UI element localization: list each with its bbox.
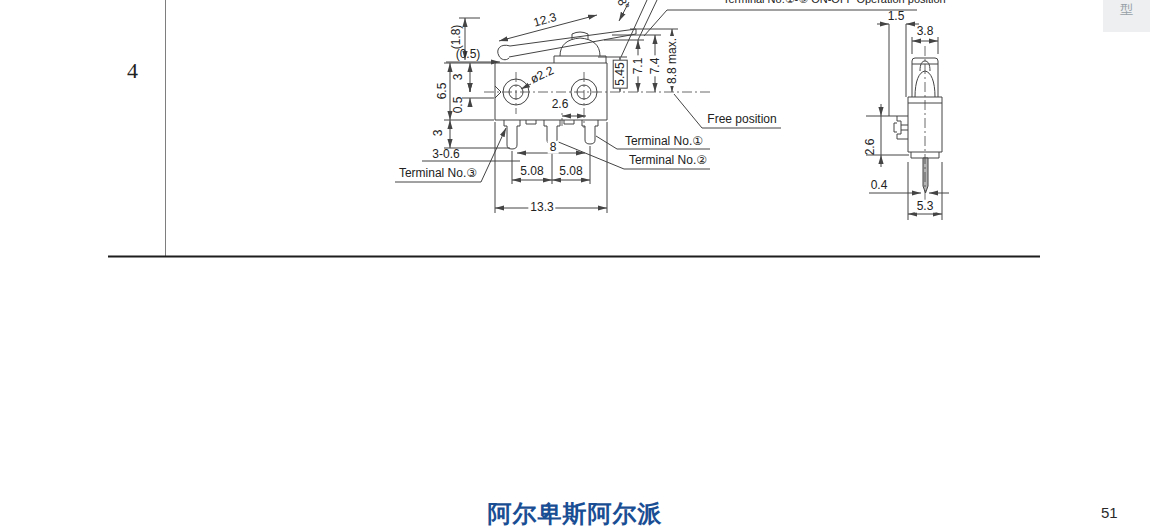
dim-pitch-right: 5.08 bbox=[557, 165, 584, 178]
dim-lever-end-height: (1.8) bbox=[450, 25, 463, 50]
dim-body-width: 13.3 bbox=[528, 201, 555, 214]
front-view-drawing bbox=[395, 0, 917, 213]
dim-height-2: 7.4 bbox=[649, 56, 662, 77]
dim-clip-offset: 1.5 bbox=[888, 10, 905, 23]
dim-pitch-left: 5.08 bbox=[518, 165, 545, 178]
terminal-2-label: Terminal No.② bbox=[629, 154, 707, 167]
top-note: Terminal No.①-③ ON-OFF Operation positio… bbox=[723, 0, 946, 6]
dim-body-height: 6.5 bbox=[436, 83, 449, 100]
dim-lever-thickness: (0.5) bbox=[456, 48, 481, 61]
dim-pin-thickness: 0.4 bbox=[871, 179, 888, 192]
terminal-3-label: Terminal No.③ bbox=[399, 167, 477, 180]
corner-tab-label: 型 bbox=[1103, 1, 1150, 19]
row-number: 4 bbox=[127, 58, 138, 84]
dim-free-height: 8.8 max. bbox=[666, 36, 679, 86]
page-number: 51 bbox=[1101, 504, 1118, 521]
dim-op-height: 5.45 bbox=[613, 59, 628, 88]
dim-pin-note: 3-0.6 bbox=[432, 148, 459, 161]
free-position-label: Free position bbox=[707, 113, 776, 126]
dim-notch-depth: 0.5 bbox=[452, 97, 465, 114]
dim-top-to-center: 3 bbox=[452, 74, 465, 81]
dim-clip-height: 2.6 bbox=[864, 139, 877, 156]
corner-tab: 型 bbox=[1103, 0, 1150, 32]
technical-drawing bbox=[0, 0, 1150, 529]
dim-height-1: 7.1 bbox=[632, 56, 645, 77]
terminal-1-label: Terminal No.① bbox=[625, 135, 703, 148]
footer-brand: 阿尔卑斯阿尔派 bbox=[0, 498, 1150, 529]
dim-pin-span: 8 bbox=[548, 141, 559, 154]
dim-body-depth: 5.3 bbox=[915, 200, 936, 213]
dim-hole-offset: 2.6 bbox=[550, 98, 571, 111]
dim-plunger-width: 3.8 bbox=[917, 25, 934, 38]
dim-pin-length: 3 bbox=[432, 130, 445, 137]
datasheet-page: 4 型 Terminal No.①-③ ON-OFF Operation pos… bbox=[0, 0, 1150, 529]
